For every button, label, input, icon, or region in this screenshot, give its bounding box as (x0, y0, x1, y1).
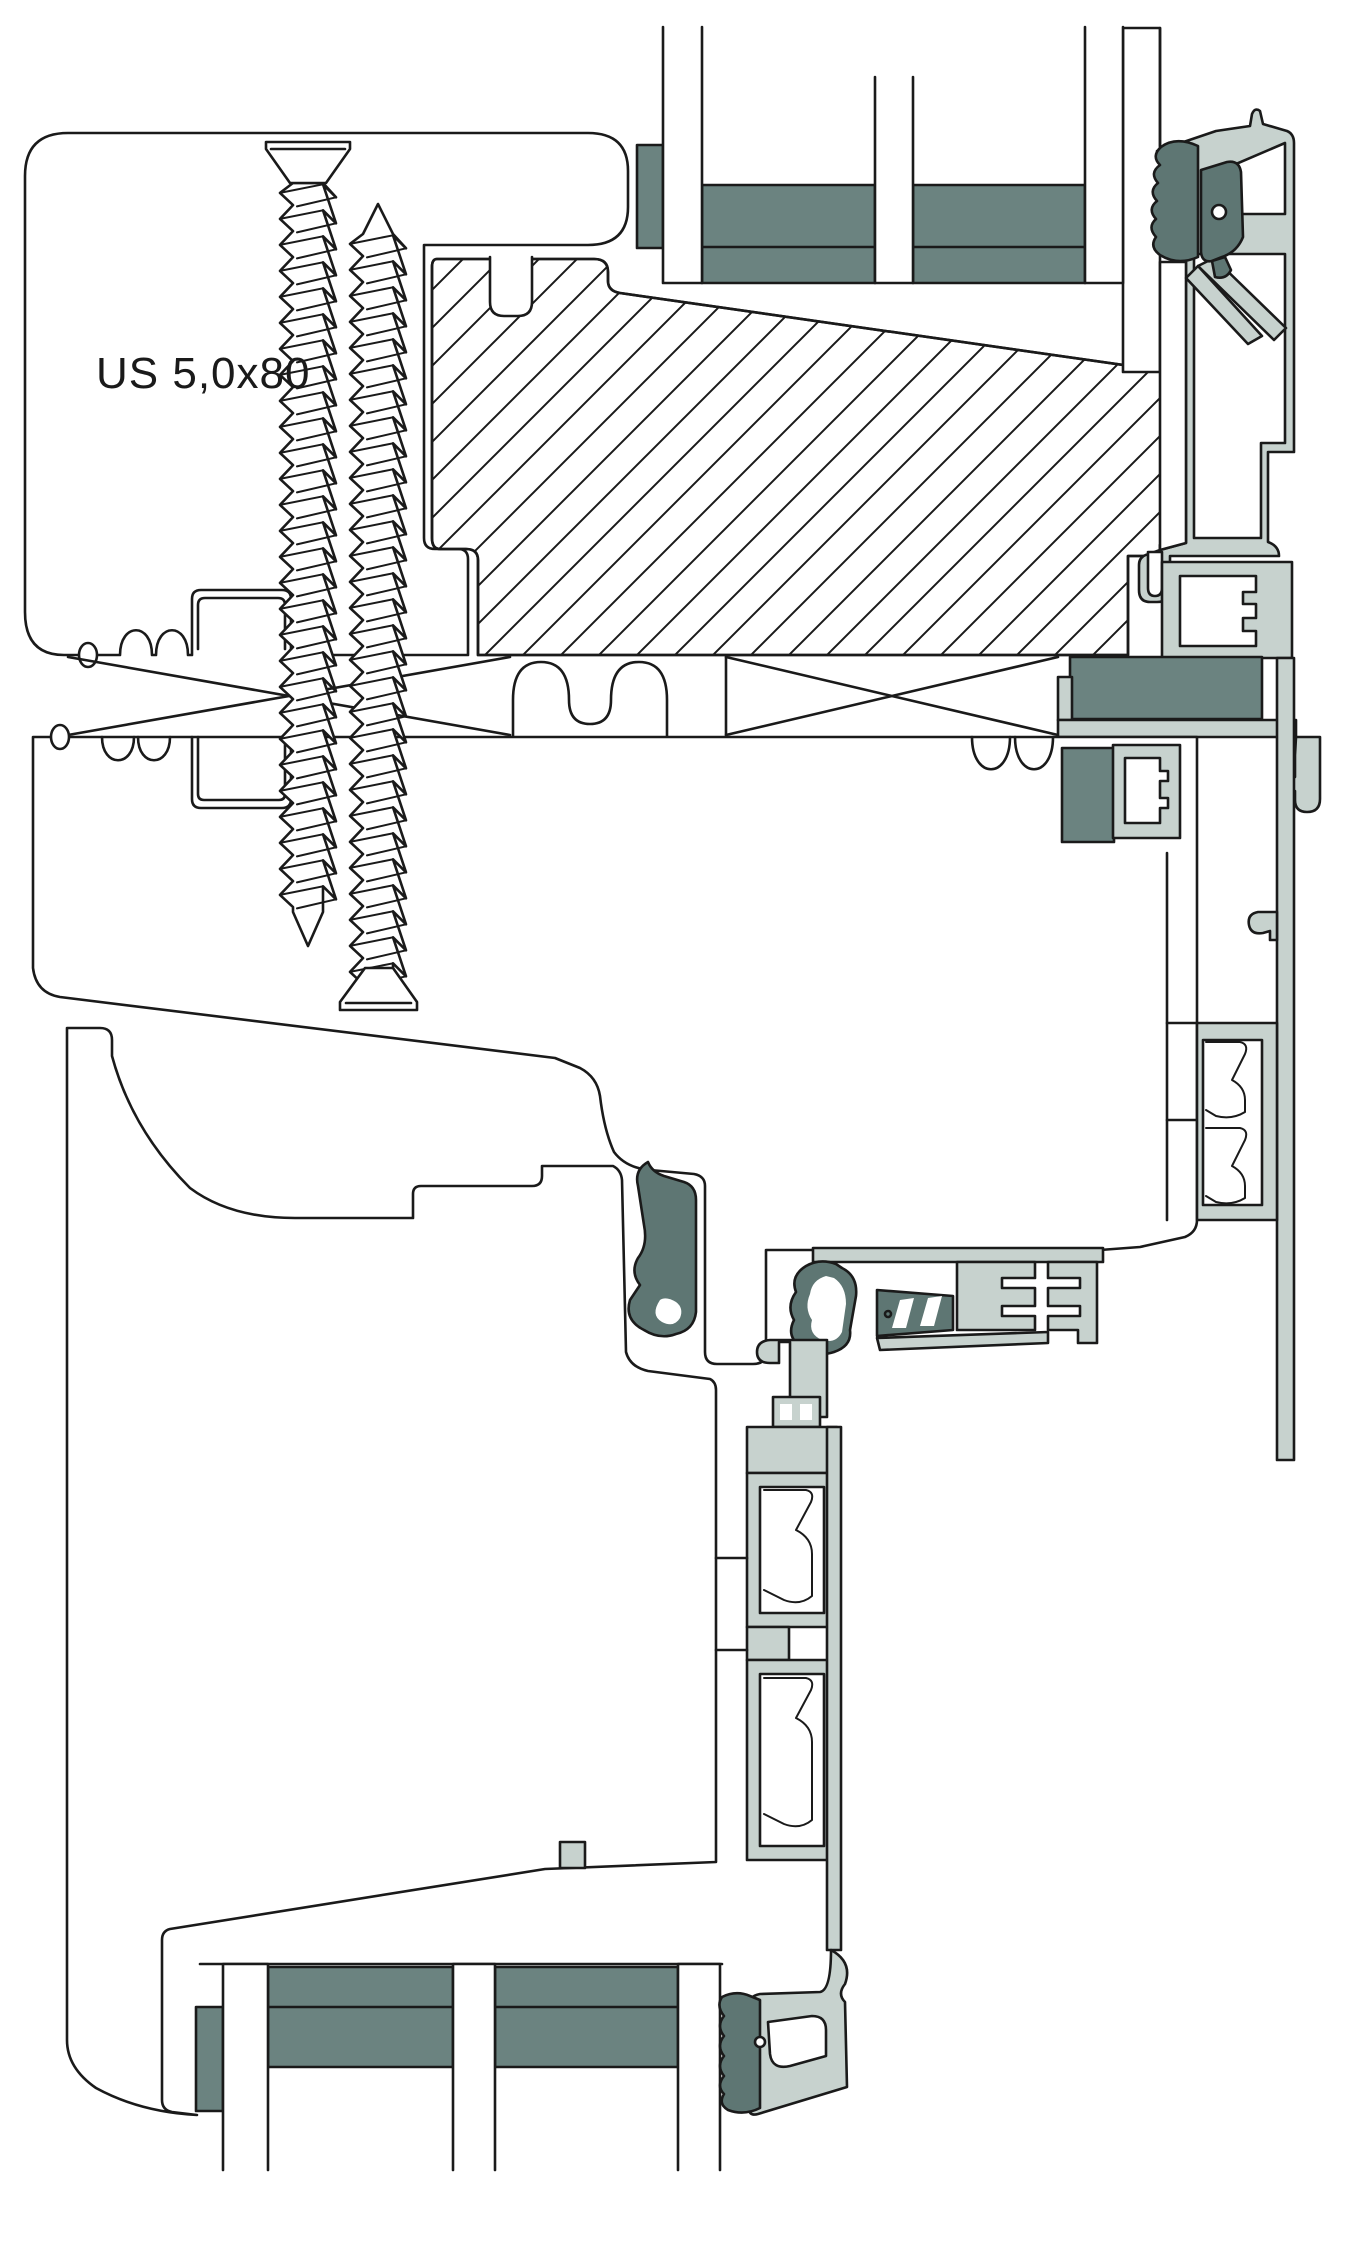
joint-sealant-block (1070, 657, 1262, 719)
wood-hatching (432, 259, 1235, 655)
alu-klotz-right (1048, 1262, 1097, 1343)
glass-pane-3 (1085, 27, 1123, 283)
alu-klotz-left (957, 1262, 1035, 1330)
sill-assembly (719, 1950, 847, 2115)
alu-carrier-strip (813, 1248, 1103, 1262)
frame-sealant-block-right (1062, 748, 1114, 842)
alu-bead-bar (827, 1427, 841, 1950)
joint-marker-upper (79, 643, 97, 667)
alu-joint-angle-lip (1058, 677, 1072, 720)
glass-pane-c (678, 1964, 720, 2170)
drip-slot (1148, 552, 1162, 596)
drainage-notch (490, 257, 532, 316)
sill-chamber (768, 2016, 826, 2067)
upper-sash-wood-hatched (432, 257, 1235, 655)
glazing-spacer-2 (913, 185, 1085, 283)
glazing-spacer-b (495, 1967, 678, 2067)
glazing-edge-block-lower (196, 2007, 223, 2111)
window-cross-section-drawing: US 5,0x80 (0, 0, 1359, 2242)
glazing-edge-block (637, 145, 663, 248)
glass-pane-a (223, 1964, 268, 2170)
glass-pane-b (453, 1964, 495, 2170)
sill-gasket (719, 1993, 760, 2112)
alu-bar-clip-hook (1249, 912, 1277, 940)
compression-tape-right (726, 657, 1058, 735)
screw-spec-label: US 5,0x80 (96, 349, 310, 398)
lower-sash-outline (67, 1028, 716, 2115)
glazing-spacer-a (268, 1967, 453, 2067)
alu-bead-neck (747, 1427, 837, 1473)
sill-gasket-hole (755, 2037, 765, 2047)
bellows-seal (513, 662, 667, 737)
glazing-gasket-outer (1152, 141, 1199, 261)
glazing-spacer-1 (702, 185, 875, 283)
glass-pane-1 (663, 27, 702, 283)
gasket-hole (1212, 205, 1226, 219)
lower-sash-wood (67, 1028, 716, 2115)
alu-bead-end-clip (560, 1842, 585, 1868)
lower-glazing-unit (196, 1964, 722, 2170)
frame-tab-inner-line (198, 598, 285, 649)
alu-joint-angle (1058, 720, 1296, 737)
glass-pane-2 (875, 77, 913, 283)
alu-bead-connector (747, 1627, 789, 1660)
upstand-strip (1123, 28, 1160, 372)
upper-exterior-aluminium (1139, 110, 1294, 658)
alu-cladding-bar (1277, 658, 1294, 1460)
joint-marker-lower (51, 725, 69, 749)
alu-box-chamber (1180, 576, 1256, 646)
technical-drawing-canvas: US 5,0x80 (0, 0, 1359, 2242)
